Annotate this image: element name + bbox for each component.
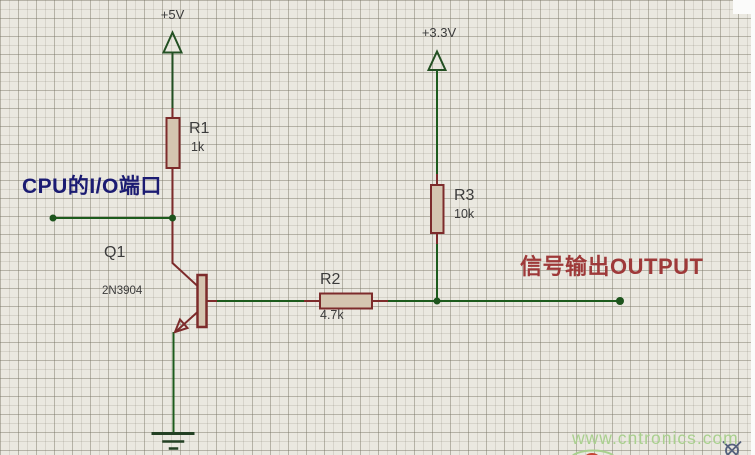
pins — [173, 108, 438, 332]
watermark-logo — [571, 451, 615, 455]
power-arrow-5v-icon — [164, 33, 182, 53]
output-end-dot — [616, 297, 624, 305]
resistor-r1-body[interactable] — [167, 118, 180, 168]
resistor-r3-ref: R3 — [454, 187, 474, 205]
schematic-canvas: +5V +3.3V R1 1k CPU的I/O端口 Q1 2N3904 R2 4… — [0, 0, 755, 455]
transistor-q1-value: 2N3904 — [102, 285, 142, 298]
resistor-r1-ref: R1 — [189, 120, 209, 138]
junction-dot-io-left — [50, 215, 57, 222]
junction-dot-io-right — [169, 215, 176, 222]
power-label-5v: +5V — [150, 8, 195, 22]
wires — [53, 70, 620, 433]
circuit-drawing — [0, 0, 755, 455]
resistor-r3-body[interactable] — [431, 185, 444, 233]
transistor-q1-ref: Q1 — [104, 244, 125, 262]
white-edge-artifact-right — [751, 0, 755, 455]
watermark-text: www.cntronics.com — [572, 429, 739, 448]
resistor-r2-value: 4.7k — [320, 309, 344, 323]
transistor-q1-base-bar[interactable] — [198, 275, 207, 327]
power-label-3v3: +3.3V — [414, 26, 464, 40]
component-bodies — [167, 118, 444, 327]
pin-q1-collector — [173, 218, 198, 286]
ground-terminal[interactable] — [153, 434, 193, 449]
power-terminal-5v[interactable] — [164, 33, 182, 109]
power-arrow-3v3-icon — [429, 52, 446, 71]
power-terminal-3v3[interactable] — [429, 52, 446, 71]
junction-dot-r3-output — [434, 298, 441, 305]
resistor-r1-value: 1k — [191, 141, 204, 155]
resistor-r2-body[interactable] — [320, 294, 372, 309]
resistor-r2-ref: R2 — [320, 271, 340, 289]
power-terminals — [164, 33, 446, 109]
annotation-signal-output: 信号输出OUTPUT — [520, 255, 703, 279]
resistor-r3-value: 10k — [454, 208, 474, 222]
annotation-cpu-io-port: CPU的I/O端口 — [22, 175, 162, 198]
